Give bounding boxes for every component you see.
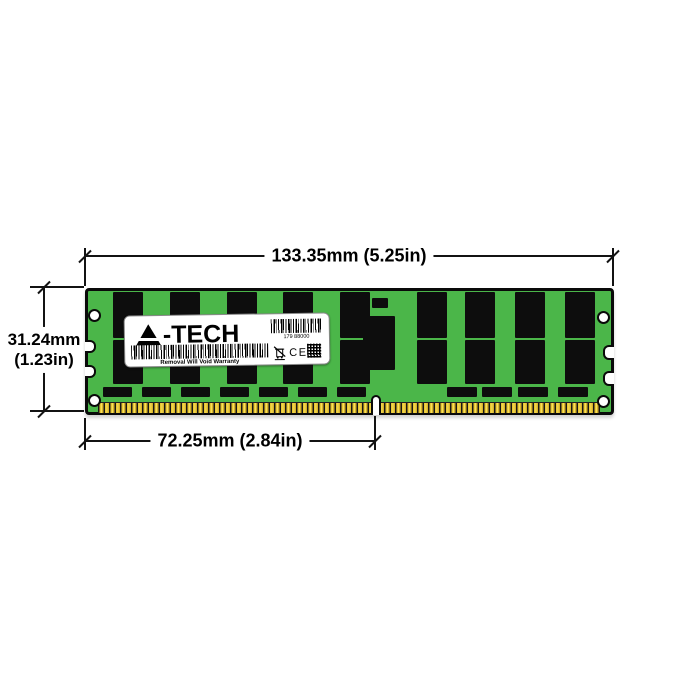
memory-chip bbox=[515, 340, 545, 384]
component-chip bbox=[447, 387, 477, 397]
mounting-hole bbox=[88, 309, 101, 322]
qr-code-icon bbox=[307, 344, 321, 358]
component-chip bbox=[142, 387, 171, 397]
component-chip bbox=[259, 387, 288, 397]
edge-notch bbox=[85, 365, 96, 378]
memory-chip bbox=[515, 292, 545, 338]
component-chip bbox=[518, 387, 548, 397]
edge-notch bbox=[603, 345, 614, 360]
product-label: -TECH 179 88000 Removal Will Void Warran… bbox=[124, 312, 331, 367]
memory-chip bbox=[565, 340, 595, 384]
gold-pins bbox=[98, 402, 600, 413]
memory-chip bbox=[417, 292, 447, 338]
register-chip bbox=[363, 316, 395, 370]
mounting-hole bbox=[597, 395, 610, 408]
mounting-hole bbox=[88, 394, 101, 407]
component-chip bbox=[103, 387, 132, 397]
component-chip bbox=[181, 387, 210, 397]
component-chip bbox=[298, 387, 327, 397]
spd-chip bbox=[372, 298, 388, 308]
height-dimension-label: 31.24mm (1.23in) bbox=[6, 327, 83, 373]
component-chip bbox=[482, 387, 512, 397]
mounting-hole bbox=[597, 311, 610, 324]
memory-chip bbox=[465, 340, 495, 384]
width-dimension-label: 133.35mm (5.25in) bbox=[264, 245, 433, 268]
memory-chip bbox=[465, 292, 495, 338]
extension-line bbox=[30, 410, 84, 412]
edge-notch bbox=[85, 340, 96, 353]
logo-triangle-icon bbox=[135, 324, 162, 347]
pins-dimension-label: 72.25mm (2.84in) bbox=[150, 430, 309, 453]
component-chip bbox=[337, 387, 366, 397]
serial-barcode-icon bbox=[271, 319, 322, 334]
key-notch bbox=[371, 395, 381, 415]
component-chip bbox=[558, 387, 588, 397]
extension-line bbox=[30, 286, 84, 288]
extension-line bbox=[84, 418, 86, 450]
weee-icon bbox=[273, 345, 286, 360]
product-image: -TECH 179 88000 Removal Will Void Warran… bbox=[0, 0, 700, 700]
height-mm: 31.24mm bbox=[8, 330, 81, 350]
memory-chip bbox=[565, 292, 595, 338]
warranty-barcode-icon bbox=[131, 343, 268, 359]
height-in: (1.23in) bbox=[8, 350, 81, 370]
warranty-text: Removal Will Void Warranty bbox=[131, 358, 268, 366]
extension-line bbox=[374, 416, 376, 450]
ce-mark: CE bbox=[289, 347, 307, 359]
barcode-number: 179 88000 bbox=[271, 333, 322, 340]
edge-notch bbox=[603, 371, 614, 386]
component-chip bbox=[220, 387, 249, 397]
memory-chip bbox=[417, 340, 447, 384]
memory-module: -TECH 179 88000 Removal Will Void Warran… bbox=[85, 288, 614, 415]
